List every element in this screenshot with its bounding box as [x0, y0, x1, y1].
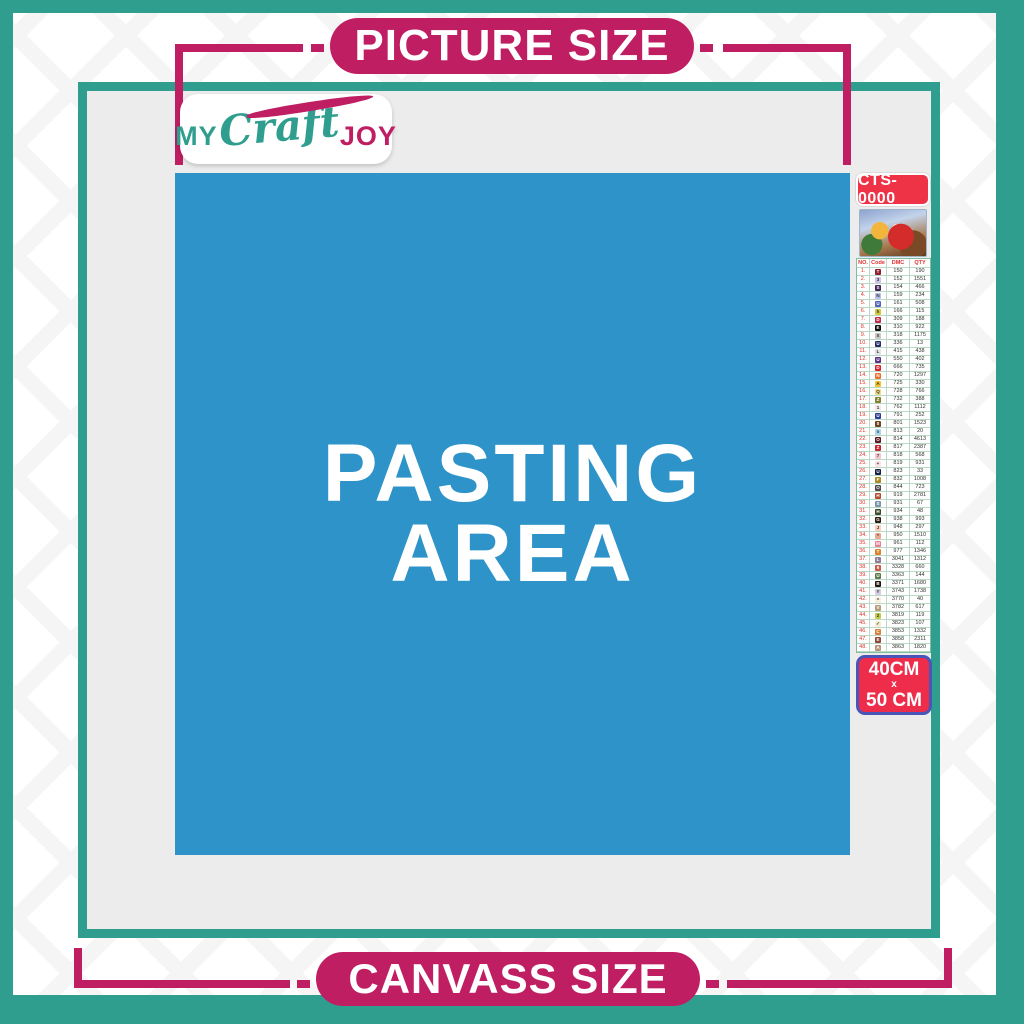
chart-row: 18.17621112	[857, 404, 930, 412]
chart-cell-no: 26.	[857, 468, 870, 476]
chart-row: 23.Z8172387	[857, 444, 930, 452]
chart-cell-no: 38.	[857, 564, 870, 572]
chart-cell-dmc: 3363	[887, 572, 910, 580]
chart-cell-code: 2	[870, 612, 887, 620]
chart-cell-code: T	[870, 548, 887, 556]
chart-cell-dmc: 938	[887, 516, 910, 524]
chart-cell-no: 42.	[857, 596, 870, 604]
chart-cell-qty: 119	[910, 612, 930, 620]
chart-cell-no: 41.	[857, 588, 870, 596]
chart-cell-qty: 48	[910, 508, 930, 516]
chart-cell-qty: 1346	[910, 548, 930, 556]
chart-cell-qty: 402	[910, 356, 930, 364]
chart-row: 13.D666735	[857, 364, 930, 372]
chart-cell-qty: 190	[910, 268, 930, 276]
color-symbol-swatch: Q	[875, 389, 881, 395]
color-symbol-swatch: Y	[875, 589, 881, 595]
chart-cell-dmc: 3041	[887, 556, 910, 564]
chart-cell-code: G	[870, 516, 887, 524]
chart-row: 48.A38631820	[857, 644, 930, 652]
color-symbol-swatch: 2	[875, 613, 881, 619]
chart-row: 38.93328660	[857, 564, 930, 572]
color-symbol-swatch: S	[875, 285, 881, 291]
color-symbol-swatch: H	[875, 493, 881, 499]
chart-cell-dmc: 919	[887, 492, 910, 500]
chart-cell-no: 6.	[857, 308, 870, 316]
chart-cell-no: 31.	[857, 508, 870, 516]
chart-cell-code: X	[870, 332, 887, 340]
chart-row: 26.U82333	[857, 468, 930, 476]
chart-cell-qty: 931	[910, 460, 930, 468]
chart-row: 21.o81320	[857, 428, 930, 436]
chart-cell-code: Z	[870, 444, 887, 452]
chart-cell-code: Z	[870, 396, 887, 404]
chart-cell-no: 35.	[857, 540, 870, 548]
chart-row: 22.O8144613	[857, 436, 930, 444]
chart-cell-qty: 568	[910, 452, 930, 460]
chart-row: 15.A725330	[857, 380, 930, 388]
chart-cell-code: 3	[870, 276, 887, 284]
chart-cell-qty: 144	[910, 572, 930, 580]
chart-cell-no: 27.	[857, 476, 870, 484]
chart-cell-dmc: 415	[887, 348, 910, 356]
chart-cell-qty: 1008	[910, 476, 930, 484]
chart-cell-qty: 388	[910, 396, 930, 404]
chart-cell-dmc: 961	[887, 540, 910, 548]
chart-cell-no: 37.	[857, 556, 870, 564]
chart-cell-code: U	[870, 572, 887, 580]
color-symbol-swatch: X	[875, 333, 881, 339]
chart-row: 30.S93167	[857, 500, 930, 508]
chart-cell-qty: 2387	[910, 444, 930, 452]
chart-row: 28.O844723	[857, 484, 930, 492]
chart-cell-dmc: 823	[887, 468, 910, 476]
chart-row: 35.M961112	[857, 540, 930, 548]
chart-cell-dmc: 154	[887, 284, 910, 292]
color-symbol-swatch: U	[875, 341, 881, 347]
chart-cell-code: 0	[870, 420, 887, 428]
chart-cell-code: M	[870, 540, 887, 548]
chart-cell-code: E	[870, 324, 887, 332]
chart-cell-qty: 115	[910, 308, 930, 316]
chart-cell-dmc: 3819	[887, 612, 910, 620]
color-symbol-swatch: N	[875, 293, 881, 299]
color-symbol-swatch: T	[875, 549, 881, 555]
chart-cell-code: ^	[870, 596, 887, 604]
chart-cell-no: 48.	[857, 644, 870, 652]
chart-cell-dmc: 166	[887, 308, 910, 316]
chart-header-cell: DMC	[887, 259, 910, 268]
chart-cell-dmc: 732	[887, 396, 910, 404]
color-symbol-swatch: +	[875, 461, 881, 467]
chart-cell-dmc: 950	[887, 532, 910, 540]
chart-cell-no: 1.	[857, 268, 870, 276]
chart-cell-qty: 1112	[910, 404, 930, 412]
chart-cell-no: 11.	[857, 348, 870, 356]
chart-cell-code: O	[870, 436, 887, 444]
chart-cell-qty: 735	[910, 364, 930, 372]
chart-cell-dmc: 152	[887, 276, 910, 284]
chart-row: 3.S154466	[857, 284, 930, 292]
chart-cell-no: 17.	[857, 396, 870, 404]
picture-size-arm-right	[843, 44, 851, 165]
chart-cell-code: U	[870, 300, 887, 308]
chart-cell-qty: 20	[910, 428, 930, 436]
color-symbol-swatch: M	[875, 541, 881, 547]
chart-cell-code: A	[870, 380, 887, 388]
color-chart-header-row: NO.CodeDMCQTY	[857, 259, 930, 268]
color-symbol-swatch: S	[875, 501, 881, 507]
color-symbol-swatch: Z	[875, 445, 881, 451]
chart-cell-no: 33.	[857, 524, 870, 532]
chart-cell-qty: 1820	[910, 644, 930, 652]
color-symbol-swatch: 7	[875, 453, 881, 459]
canvass-size-line-left	[74, 980, 290, 988]
chart-cell-code: O	[870, 484, 887, 492]
chart-cell-dmc: 977	[887, 548, 910, 556]
color-symbol-swatch: o	[875, 429, 881, 435]
chart-cell-qty: 188	[910, 316, 930, 324]
chart-cell-dmc: 844	[887, 484, 910, 492]
chart-cell-qty: 1175	[910, 332, 930, 340]
chart-cell-no: 44.	[857, 612, 870, 620]
canvass-size-label: CANVASS SIZE	[348, 955, 667, 1003]
chart-cell-code: +	[870, 460, 887, 468]
chart-row: 19.U791252	[857, 412, 930, 420]
chart-row: 41.Y37431738	[857, 588, 930, 596]
chart-cell-no: 40.	[857, 580, 870, 588]
chart-cell-qty: 1551	[910, 276, 930, 284]
color-symbol-swatch: T	[875, 269, 881, 275]
color-symbol-swatch: U	[875, 413, 881, 419]
chart-cell-qty: 40	[910, 596, 930, 604]
chart-row: 14.N7201297	[857, 372, 930, 380]
chart-cell-dmc: 931	[887, 500, 910, 508]
chart-cell-dmc: 791	[887, 412, 910, 420]
chart-cell-no: 29.	[857, 492, 870, 500]
picture-size-banner: PICTURE SIZE	[330, 18, 694, 74]
color-symbol-swatch: C	[875, 629, 881, 635]
chart-cell-no: 22.	[857, 436, 870, 444]
canvass-size-banner: CANVASS SIZE	[316, 952, 700, 1006]
chart-cell-qty: 1332	[910, 628, 930, 636]
chart-cell-code: U	[870, 340, 887, 348]
color-chart-body: 1.T1501902.315215513.S1544664.N1592345.U…	[857, 268, 930, 652]
chart-cell-no: 32.	[857, 516, 870, 524]
product-thumbnail	[859, 209, 927, 257]
chart-row: 9.X3181175	[857, 332, 930, 340]
color-symbol-swatch: U	[875, 357, 881, 363]
chart-cell-qty: 297	[910, 524, 930, 532]
chart-cell-no: 10.	[857, 340, 870, 348]
color-symbol-swatch: ✓	[875, 621, 881, 627]
chart-row: 16.Q728766	[857, 388, 930, 396]
chart-cell-no: 34.	[857, 532, 870, 540]
chart-row: 25.+819931	[857, 460, 930, 468]
chart-cell-dmc: 728	[887, 388, 910, 396]
chart-header-cell: Code	[870, 259, 887, 268]
chart-cell-no: 4.	[857, 292, 870, 300]
chart-cell-code: ✓	[870, 620, 887, 628]
chart-cell-dmc: 161	[887, 300, 910, 308]
chart-cell-code: T	[870, 268, 887, 276]
chart-cell-qty: 723	[910, 484, 930, 492]
color-symbol-swatch: U	[875, 301, 881, 307]
chart-cell-code: D	[870, 364, 887, 372]
brand-logo: MY Craft JOY	[180, 94, 392, 164]
chart-cell-code: H	[870, 508, 887, 516]
chart-row: 5.U161508	[857, 300, 930, 308]
color-symbol-swatch: U	[875, 573, 881, 579]
color-symbol-swatch: *	[875, 533, 881, 539]
chart-cell-no: 30.	[857, 500, 870, 508]
chart-cell-qty: 2781	[910, 492, 930, 500]
chart-row: 12.U550402	[857, 356, 930, 364]
chart-cell-no: 43.	[857, 604, 870, 612]
chart-row: 6.h166115	[857, 308, 930, 316]
chart-cell-code: S	[870, 500, 887, 508]
color-symbol-swatch: N	[875, 373, 881, 379]
color-symbol-swatch: E	[875, 325, 881, 331]
chart-cell-qty: 252	[910, 412, 930, 420]
chart-cell-code: E	[870, 636, 887, 644]
chart-row: 24.7818568	[857, 452, 930, 460]
chart-cell-dmc: 934	[887, 508, 910, 516]
color-symbol-swatch: 9	[875, 565, 881, 571]
chart-cell-dmc: 762	[887, 404, 910, 412]
picture-size-dash-right	[700, 44, 713, 52]
chart-cell-qty: 234	[910, 292, 930, 300]
chart-cell-dmc: 318	[887, 332, 910, 340]
chart-cell-no: 9.	[857, 332, 870, 340]
product-code-label: CTS-0000	[858, 172, 928, 208]
chart-row: 20.08011523	[857, 420, 930, 428]
chart-row: 10.U33613	[857, 340, 930, 348]
chart-cell-qty: 617	[910, 604, 930, 612]
chart-row: 4.N159234	[857, 292, 930, 300]
chart-cell-qty: 330	[910, 380, 930, 388]
size-badge: 40CM x 50 CM	[856, 655, 932, 715]
chart-cell-no: 45.	[857, 620, 870, 628]
poster: PICTURE SIZE CANVASS SIZE MY Craft JOY P…	[0, 0, 1024, 1024]
chart-cell-code: N	[870, 292, 887, 300]
chart-cell-dmc: 948	[887, 524, 910, 532]
chart-row: 11.L415438	[857, 348, 930, 356]
pasting-area-line1: PASTING	[323, 434, 702, 514]
chart-row: 36.T9771346	[857, 548, 930, 556]
chart-row: 8.E310922	[857, 324, 930, 332]
chart-row: 7.D309188	[857, 316, 930, 324]
chart-cell-code: V	[870, 604, 887, 612]
chart-cell-code: 9	[870, 564, 887, 572]
chart-cell-dmc: 801	[887, 420, 910, 428]
chart-cell-no: 20.	[857, 420, 870, 428]
chart-cell-qty: 1510	[910, 532, 930, 540]
chart-cell-code: U	[870, 468, 887, 476]
picture-size-line-left	[175, 44, 303, 52]
canvass-size-dash-right	[706, 980, 719, 988]
chart-row: 29.H9192781	[857, 492, 930, 500]
color-symbol-swatch: G	[875, 517, 881, 523]
chart-cell-dmc: 818	[887, 452, 910, 460]
chart-cell-qty: 508	[910, 300, 930, 308]
chart-cell-code: S	[870, 284, 887, 292]
chart-cell-qty: 112	[910, 540, 930, 548]
chart-row: 32.G938993	[857, 516, 930, 524]
chart-cell-dmc: 3863	[887, 644, 910, 652]
chart-cell-dmc: 3853	[887, 628, 910, 636]
chart-cell-no: 46.	[857, 628, 870, 636]
color-symbol-swatch: A	[875, 381, 881, 387]
picture-size-label: PICTURE SIZE	[354, 21, 669, 71]
pasting-area-line2: AREA	[390, 514, 634, 594]
canvass-size-dash-left	[297, 980, 310, 988]
chart-row: 34.*9501510	[857, 532, 930, 540]
chart-row: 46.C38531332	[857, 628, 930, 636]
chart-cell-dmc: 550	[887, 356, 910, 364]
chart-cell-no: 16.	[857, 388, 870, 396]
color-symbol-swatch: O	[875, 437, 881, 443]
chart-cell-no: 24.	[857, 452, 870, 460]
picture-size-line-right	[723, 44, 851, 52]
chart-cell-dmc: 150	[887, 268, 910, 276]
chart-cell-qty: 1312	[910, 556, 930, 564]
chart-cell-dmc: 3858	[887, 636, 910, 644]
color-symbol-swatch: H	[875, 509, 881, 515]
chart-cell-qty: 466	[910, 284, 930, 292]
color-symbol-swatch: D	[875, 317, 881, 323]
chart-cell-code: 1	[870, 404, 887, 412]
chart-cell-dmc: 3782	[887, 604, 910, 612]
chart-cell-qty: 660	[910, 564, 930, 572]
product-code-badge: CTS-0000	[856, 173, 930, 206]
chart-cell-qty: 766	[910, 388, 930, 396]
chart-cell-dmc: 310	[887, 324, 910, 332]
chart-cell-dmc: 309	[887, 316, 910, 324]
color-symbol-swatch: 1	[875, 405, 881, 411]
color-symbol-swatch: D	[875, 365, 881, 371]
chart-cell-dmc: 159	[887, 292, 910, 300]
chart-row: 2.31521551	[857, 276, 930, 284]
chart-cell-no: 36.	[857, 548, 870, 556]
color-symbol-swatch: B	[875, 581, 881, 587]
chart-cell-dmc: 817	[887, 444, 910, 452]
chart-cell-code: L	[870, 556, 887, 564]
size-line2: x	[891, 680, 897, 690]
chart-cell-code: Q	[870, 388, 887, 396]
chart-row: 45.✓3823107	[857, 620, 930, 628]
pasting-area: PASTING AREA	[175, 173, 850, 855]
chart-cell-dmc: 3328	[887, 564, 910, 572]
chart-row: 43.V3782617	[857, 604, 930, 612]
color-symbol-swatch: A	[875, 645, 881, 651]
chart-cell-no: 21.	[857, 428, 870, 436]
color-symbol-swatch: E	[875, 637, 881, 643]
color-symbol-swatch: 0	[875, 421, 881, 427]
chart-row: 47.E38582311	[857, 636, 930, 644]
chart-cell-code: L	[870, 348, 887, 356]
chart-cell-qty: 1297	[910, 372, 930, 380]
chart-cell-code: D	[870, 316, 887, 324]
color-chart-table: NO.CodeDMCQTY 1.T1501902.315215513.S1544…	[856, 258, 931, 653]
chart-header-cell: QTY	[910, 259, 930, 268]
color-symbol-swatch: 3	[875, 277, 881, 283]
color-symbol-swatch: U	[875, 469, 881, 475]
chart-cell-no: 13.	[857, 364, 870, 372]
chart-row: 40.B33711680	[857, 580, 930, 588]
chart-cell-code: 7	[870, 452, 887, 460]
chart-cell-no: 18.	[857, 404, 870, 412]
color-symbol-swatch: h	[875, 309, 881, 315]
chart-cell-dmc: 725	[887, 380, 910, 388]
chart-cell-qty: 1738	[910, 588, 930, 596]
color-symbol-swatch: F	[875, 477, 881, 483]
chart-cell-dmc: 3371	[887, 580, 910, 588]
chart-cell-qty: 993	[910, 516, 930, 524]
chart-cell-code: F	[870, 476, 887, 484]
chart-cell-qty: 67	[910, 500, 930, 508]
chart-cell-no: 19.	[857, 412, 870, 420]
canvass-size-arm-right	[944, 948, 952, 988]
chart-cell-dmc: 832	[887, 476, 910, 484]
chart-cell-qty: 922	[910, 324, 930, 332]
logo-word-my: MY	[175, 121, 218, 152]
logo-word-joy: JOY	[340, 121, 397, 152]
chart-row: 39.U3363144	[857, 572, 930, 580]
chart-cell-no: 7.	[857, 316, 870, 324]
chart-cell-code: A	[870, 644, 887, 652]
chart-cell-code: B	[870, 580, 887, 588]
chart-cell-code: U	[870, 412, 887, 420]
chart-cell-no: 25.	[857, 460, 870, 468]
chart-cell-no: 47.	[857, 636, 870, 644]
chart-cell-code: H	[870, 492, 887, 500]
canvass-size-line-right	[727, 980, 952, 988]
chart-row: 31.H93448	[857, 508, 930, 516]
chart-row: 27.F8321008	[857, 476, 930, 484]
chart-row: 44.23819119	[857, 612, 930, 620]
chart-cell-no: 15.	[857, 380, 870, 388]
color-symbol-swatch: ^	[875, 597, 881, 603]
chart-cell-dmc: 720	[887, 372, 910, 380]
chart-cell-code: *	[870, 532, 887, 540]
chart-row: 1.T150190	[857, 268, 930, 276]
chart-cell-dmc: 3743	[887, 588, 910, 596]
chart-cell-qty: 1523	[910, 420, 930, 428]
chart-cell-dmc: 819	[887, 460, 910, 468]
chart-cell-qty: 1680	[910, 580, 930, 588]
chart-cell-qty: 107	[910, 620, 930, 628]
chart-cell-no: 5.	[857, 300, 870, 308]
color-symbol-swatch: O	[875, 485, 881, 491]
picture-size-dash-left	[311, 44, 324, 52]
chart-cell-dmc: 336	[887, 340, 910, 348]
chart-cell-dmc: 3823	[887, 620, 910, 628]
chart-cell-no: 28.	[857, 484, 870, 492]
chart-cell-code: h	[870, 308, 887, 316]
chart-cell-no: 23.	[857, 444, 870, 452]
chart-cell-code: Y	[870, 588, 887, 596]
chart-cell-qty: 13	[910, 340, 930, 348]
chart-cell-no: 3.	[857, 284, 870, 292]
chart-cell-no: 12.	[857, 356, 870, 364]
size-line1: 40CM	[869, 660, 920, 679]
chart-row: 17.Z732388	[857, 396, 930, 404]
chart-cell-code: C	[870, 628, 887, 636]
color-symbol-swatch: J	[875, 525, 881, 531]
chart-cell-code: N	[870, 372, 887, 380]
chart-cell-dmc: 814	[887, 436, 910, 444]
